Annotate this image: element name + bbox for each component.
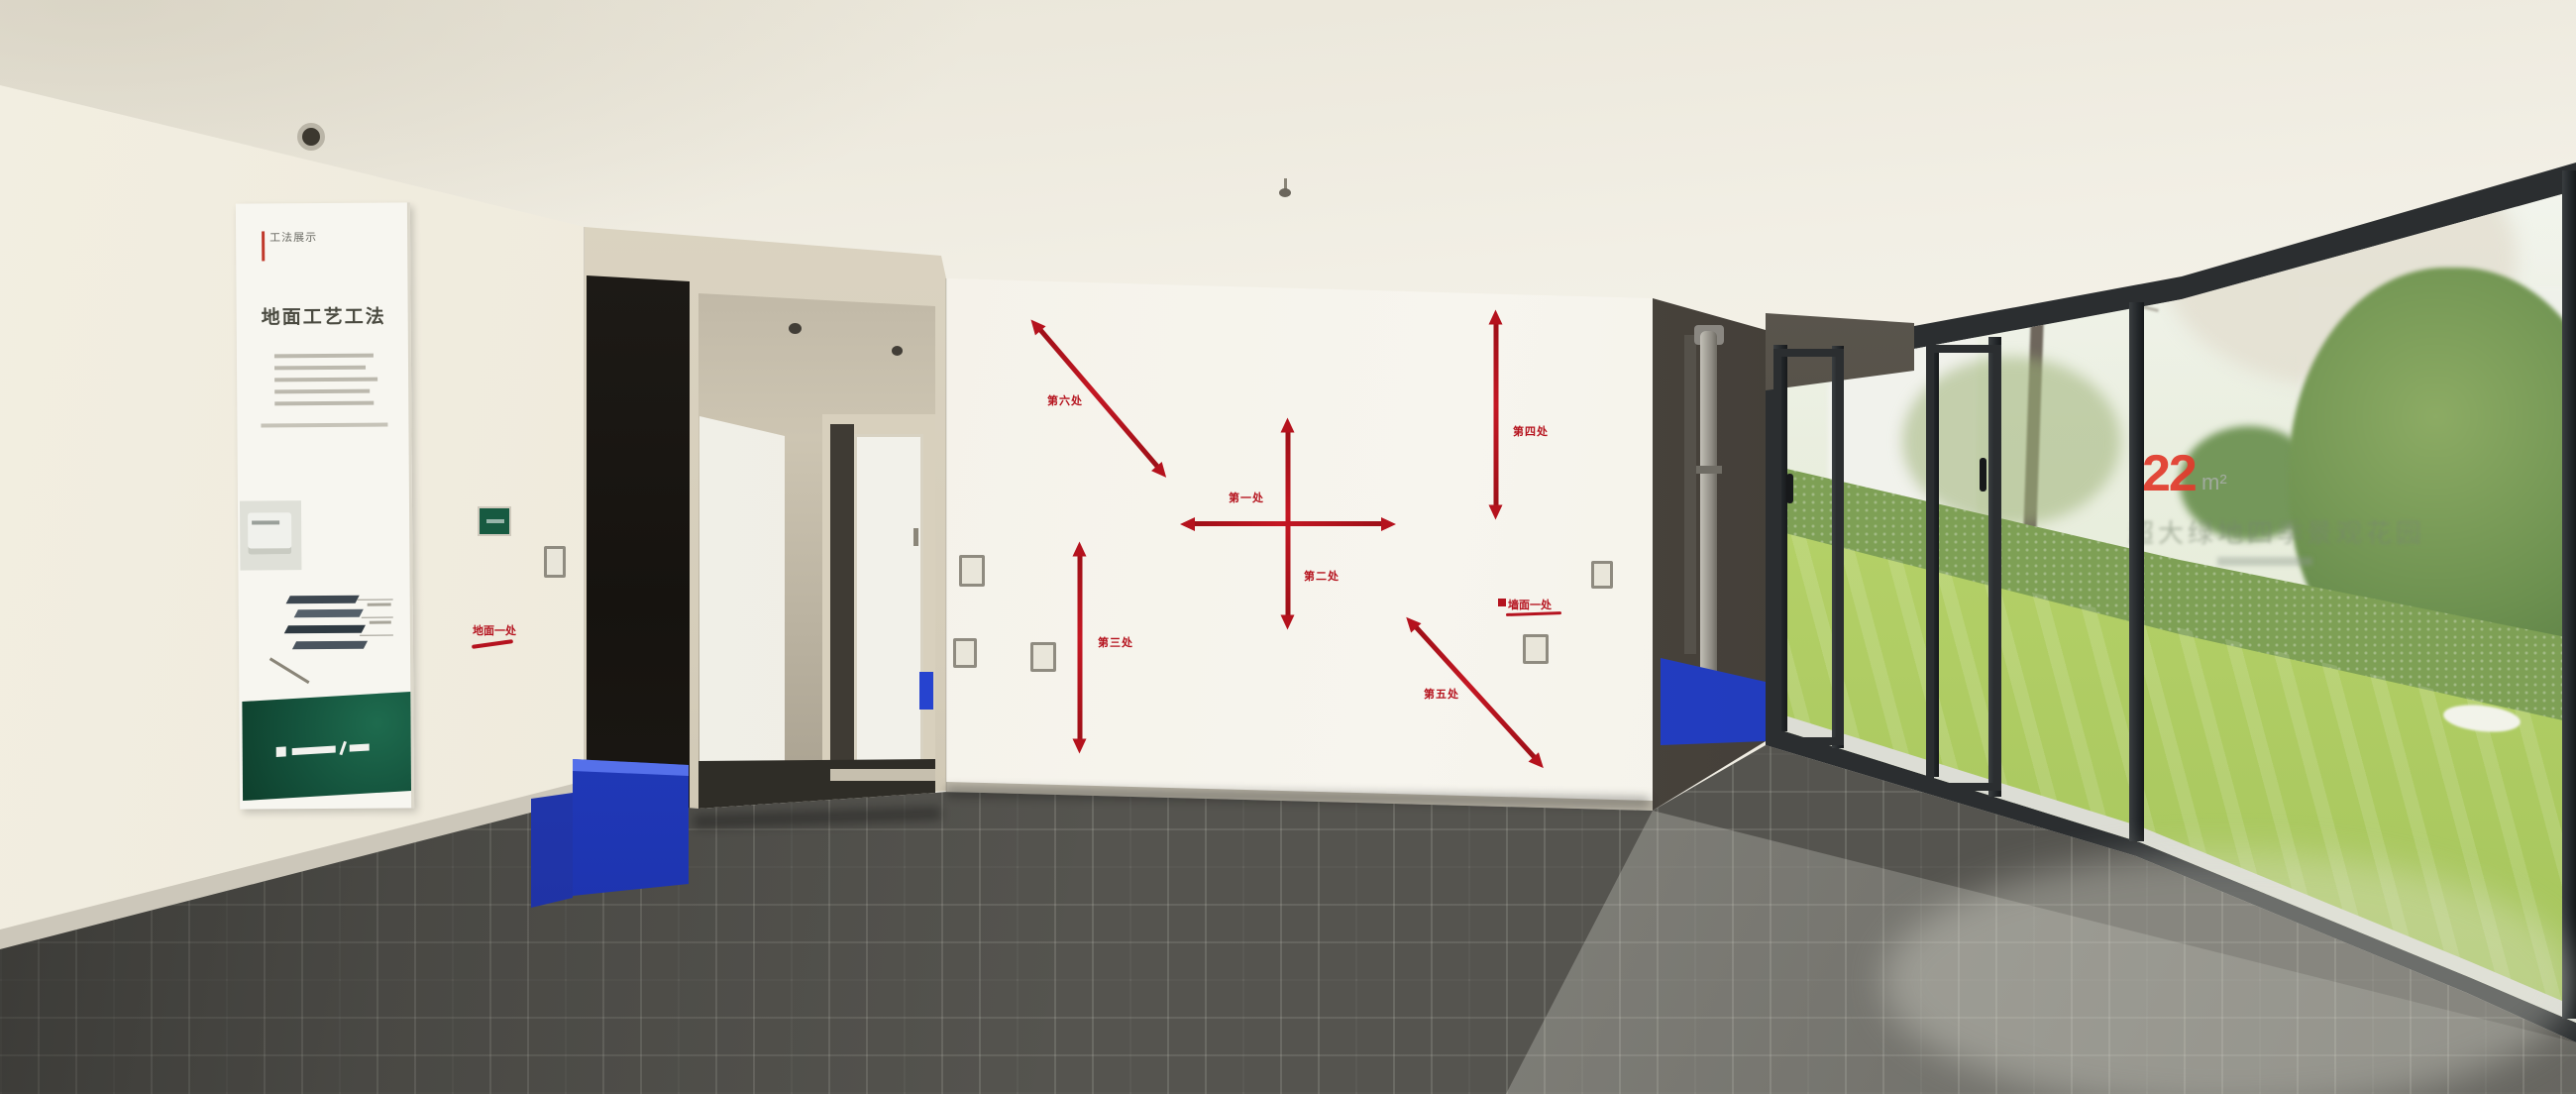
green-sign: [478, 506, 511, 536]
window-handle: [1980, 458, 1986, 492]
poster-text-line: [274, 354, 374, 359]
door-handle: [913, 528, 918, 546]
poster-diagram-layer: [294, 609, 364, 617]
spot-label: 第二处: [1304, 568, 1340, 584]
area-decal-unit: m²: [2201, 470, 2241, 495]
light-switch: [1030, 642, 1056, 672]
pipe: [1684, 335, 1696, 654]
poster-leader-label: [370, 621, 391, 624]
window-mullion: [2562, 170, 2576, 1019]
corridor-end-door: [854, 434, 923, 776]
poster-photo-detail: [252, 520, 279, 524]
poster-leader-line: [358, 600, 393, 601]
light-switch: [544, 546, 566, 578]
sprinkler-head: [1279, 188, 1291, 197]
red-note-left: 地面一处: [473, 622, 516, 638]
poster-diagram-layer: [292, 641, 368, 650]
light-switch: [1523, 634, 1549, 664]
note-square-icon: [1498, 599, 1506, 606]
poster-footer-banner: [242, 692, 411, 801]
brand-logo-text: [350, 743, 370, 751]
window-sash: [1926, 345, 2001, 791]
poster-logo: 工法展示: [262, 231, 380, 262]
spot-label: 第一处: [1229, 490, 1264, 505]
poster-leader-line: [362, 617, 393, 618]
brand-logo-text: [292, 745, 336, 755]
spot-label: 第四处: [1513, 423, 1549, 439]
craft-poster: 工法展示 地面工艺工法: [236, 202, 414, 809]
wall-corner: [945, 278, 947, 792]
pipe: [1700, 331, 1717, 688]
spot-label: 第三处: [1098, 634, 1133, 650]
brand-logo-icon: [276, 746, 286, 757]
light-switch: [953, 638, 977, 668]
window-mullion: [2129, 302, 2144, 841]
dome-camera-icon: [892, 346, 903, 356]
brand-logo-divider: [339, 741, 347, 755]
poster-photo-sample: [248, 512, 291, 554]
area-decal-caption: 超大绿地四季景观花园: [2128, 513, 2465, 547]
poster-title: 地面工艺工法: [237, 301, 411, 329]
showroom-photo: 22 m² 超大绿地四季景观花园 工法展示 地面工艺工法: [0, 0, 2576, 1094]
corridor-baseboard: [830, 769, 935, 781]
corridor-blue-baseboard: [919, 672, 933, 710]
poster-pen: [269, 657, 310, 684]
area-decal-subline: [2217, 557, 2312, 566]
dome-camera-icon: [789, 323, 802, 334]
measure-arrow-vertical: [1494, 321, 1499, 509]
boxed-note-text: 墙面一处: [1508, 597, 1552, 612]
light-switch: [1591, 561, 1613, 589]
floor-glow: [1882, 852, 2576, 1094]
measure-arrow-vertical: [1078, 553, 1083, 743]
vent-icon: [297, 123, 325, 151]
green-sign-text: [486, 519, 504, 523]
light-switch: [959, 555, 985, 587]
poster-text-line: [274, 389, 370, 394]
poster-caption-line: [261, 423, 387, 428]
poster-leader-line: [360, 635, 393, 636]
spot-label: 第六处: [1047, 392, 1083, 408]
measure-arrow-horizontal: [1191, 521, 1385, 526]
poster-leader-label: [368, 603, 391, 606]
pipe-bracket: [1696, 466, 1722, 474]
poster-diagram-layer: [286, 596, 360, 604]
poster-text-line: [274, 401, 374, 406]
window-sash: [1773, 349, 1844, 745]
poster-photo: [240, 500, 301, 570]
poster-text-line: [274, 366, 366, 371]
poster-text-line: [274, 378, 377, 383]
poster-diagram-layer: [284, 625, 366, 634]
spot-label: 第五处: [1424, 686, 1459, 702]
corridor-dark-gap: [830, 424, 854, 785]
window-handle: [1786, 474, 1793, 503]
